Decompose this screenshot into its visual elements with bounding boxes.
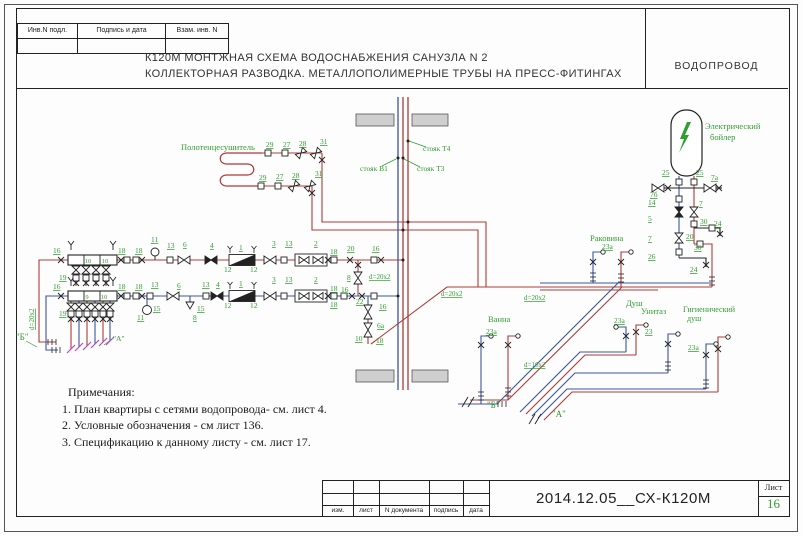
- schematic-label: 30: [700, 217, 708, 226]
- schematic-label: 23: [645, 327, 653, 336]
- schematic-label: 29: [266, 140, 274, 149]
- schematic-label: 28: [292, 171, 300, 180]
- schematic-label: 20: [686, 232, 694, 241]
- union-tick-icon: [228, 246, 233, 253]
- schematic-label: 16: [341, 285, 349, 294]
- fitting-icon: [76, 311, 82, 317]
- schematic-label: 15: [153, 304, 161, 313]
- schematic-label: 22: [356, 297, 364, 306]
- schematic-label: 18: [376, 336, 384, 345]
- schematic-label: 31: [320, 137, 328, 146]
- fitting-icon: [282, 150, 288, 156]
- valve-vertical-icon: [91, 303, 99, 311]
- schematic-label: Гигиенический: [683, 305, 736, 314]
- note-line: 1. План квартиры с сетями водопровода- с…: [62, 401, 327, 418]
- valve-vertical-icon: [72, 266, 80, 274]
- notes-heading: Примечания:: [68, 384, 327, 401]
- schematic-label: 11: [151, 235, 158, 244]
- schematic-label: 31: [315, 169, 323, 178]
- fitting-icon: [371, 257, 377, 263]
- floor-slab: [356, 114, 394, 126]
- schematic-label: 18: [330, 284, 338, 293]
- junction-dot: [397, 295, 400, 298]
- notes-block: Примечания: 1. План квартиры с сетями во…: [62, 384, 327, 450]
- schematic-label: 3: [272, 239, 276, 248]
- tap-outlet-icon: [516, 334, 520, 338]
- schematic-label: 23а: [602, 242, 614, 251]
- fitting-icon: [133, 293, 139, 299]
- schematic-label: 23а: [688, 343, 700, 352]
- schematic-label: 7: [699, 199, 703, 208]
- collector-bar: [68, 255, 117, 265]
- schematic-label: 6а: [377, 321, 385, 330]
- valve-vertical-icon: [102, 266, 110, 274]
- schematic-label: 25: [696, 168, 704, 177]
- pipe-c: [593, 252, 601, 283]
- junction-dot: [402, 259, 405, 262]
- fitting-icon: [371, 293, 377, 299]
- floor-slab: [412, 114, 448, 126]
- fitting-icon: [124, 257, 130, 263]
- valve-icon: [264, 256, 276, 264]
- schematic-label: душ: [687, 314, 702, 323]
- valve-vertical-icon: [82, 266, 90, 274]
- schematic-label: 18: [118, 282, 126, 291]
- union-tick-icon: [252, 282, 257, 289]
- schematic-label: 4: [210, 241, 214, 250]
- tap-outlet-icon: [714, 342, 718, 346]
- valve-vertical-icon: [690, 207, 698, 217]
- schematic-label: 6: [177, 281, 181, 290]
- valve-vertical-icon: [364, 323, 372, 337]
- check-valve-icon: [205, 256, 217, 264]
- schematic-label: 14: [648, 198, 656, 207]
- schematic-label: 26: [648, 252, 656, 261]
- schematic-label: 18: [330, 300, 338, 309]
- drawing-sheet: Инв.N подл. Подпись и дата Взам. инв. N …: [0, 0, 803, 536]
- floor-slab: [356, 370, 394, 382]
- schematic-label: 10: [101, 294, 108, 301]
- schematic-label: 7: [648, 234, 652, 243]
- fitting-icon: [147, 293, 153, 299]
- schematic-label: d=20x2: [28, 308, 36, 330]
- electric-boiler: [671, 110, 702, 176]
- collector-bar: [68, 291, 117, 301]
- junction-dot: [407, 221, 410, 224]
- schematic-label: "Б": [16, 332, 29, 342]
- union-tick-icon: [252, 246, 257, 253]
- schematic-label: 2: [314, 239, 318, 248]
- schematic-label: 15: [197, 304, 205, 313]
- tap-outlet-icon: [726, 335, 730, 339]
- schematic-label: 24: [690, 265, 698, 274]
- schematic-label: d=20x2: [441, 290, 463, 298]
- schematic-label: 28: [299, 139, 307, 148]
- pipe-k: [694, 228, 720, 236]
- schematic-label: 23а: [486, 327, 498, 336]
- schematic-label: 12: [250, 301, 258, 310]
- valve-icon: [167, 292, 179, 300]
- fitting-icon: [258, 183, 264, 189]
- valve-icon: [178, 256, 190, 264]
- schematic-label: 2: [314, 275, 318, 284]
- junction-dot: [407, 140, 410, 143]
- schematic-label: "А": [113, 334, 125, 343]
- schematic-label: 7а: [711, 173, 719, 182]
- schematic-label: 23а: [614, 316, 626, 325]
- schematic-label: 13: [167, 241, 175, 250]
- fitting-icon: [676, 179, 682, 185]
- schematic-label: 13: [285, 275, 293, 284]
- schematic-label: 10: [85, 258, 92, 265]
- schematic-label: Полотенцесушитель: [181, 142, 255, 152]
- drain-valve-icon: [186, 302, 194, 309]
- schematic-label: 6: [183, 240, 187, 249]
- floor-slab: [412, 370, 448, 382]
- valve-vertical-icon: [83, 303, 91, 311]
- pipe-h: [312, 186, 478, 287]
- schematic-label: 5: [648, 214, 652, 223]
- schematic-label: Электрический: [705, 121, 761, 131]
- pipe-h: [718, 337, 726, 392]
- air-vent-icon: [110, 277, 116, 286]
- towel-warmer-coil: [220, 153, 262, 186]
- union-tick-icon: [228, 282, 233, 289]
- fitting-icon: [691, 179, 697, 185]
- schematic-label: 12: [224, 301, 232, 310]
- schematic-label: 16: [53, 282, 61, 291]
- valve-vertical-icon: [67, 303, 75, 311]
- fitting-icon: [92, 311, 98, 317]
- schematic-label: 20: [347, 244, 355, 253]
- fitting-icon: [265, 150, 271, 156]
- fitting-icon: [331, 293, 337, 299]
- check-valve-icon: [211, 292, 223, 300]
- schematic-label: 30: [694, 243, 702, 252]
- valve-vertical-icon: [364, 305, 372, 319]
- tap-outlet-icon: [629, 250, 633, 254]
- schematic-label: 12: [224, 265, 232, 274]
- schematic-label: 19: [59, 309, 67, 318]
- schematic-label: 4: [216, 280, 220, 289]
- junction-dot: [397, 157, 400, 160]
- air-vent-icon: [110, 241, 116, 250]
- stamp-col-izm: изм.: [323, 505, 353, 516]
- fitting-icon: [100, 311, 106, 317]
- schematic-label: бойлер: [710, 132, 735, 142]
- junction-dot: [402, 229, 405, 232]
- valve-icon: [704, 184, 716, 192]
- tap-outlet-icon: [676, 332, 680, 336]
- fitting-icon: [281, 293, 287, 299]
- schematic-label: Унитаз: [641, 306, 667, 316]
- schematic-label: 29: [259, 173, 267, 182]
- pipe-c: [618, 327, 626, 352]
- schematic-label: 13: [202, 280, 210, 289]
- valve-vertical-icon: [106, 303, 114, 311]
- fitting-icon: [676, 249, 682, 255]
- fitting-icon: [676, 196, 682, 202]
- schematic-label: "Б": [487, 400, 500, 410]
- schematic-label: 27: [283, 140, 291, 149]
- valve-vertical-icon: [354, 272, 362, 284]
- fitting-icon: [133, 257, 139, 263]
- pipe-h: [636, 325, 644, 355]
- fitting-icon: [84, 311, 90, 317]
- check-valve-vertical-icon: [675, 207, 683, 217]
- schematic-canvas: Полотенцесушительстояк В1стояк Т3стояк Т…: [0, 0, 803, 536]
- schematic-label: 8: [347, 273, 351, 282]
- fitting-icon: [281, 257, 287, 263]
- schematic-label: 11: [137, 313, 144, 322]
- fitting-icon: [103, 275, 109, 281]
- schematic-label: 19: [59, 273, 67, 282]
- pipe-c: [706, 344, 714, 389]
- schematic-label: 13: [151, 280, 159, 289]
- fitting-icon: [93, 275, 99, 281]
- schematic-label: 13: [285, 239, 293, 248]
- schematic-label: 16: [372, 244, 380, 253]
- break-mark-icon: [462, 397, 474, 407]
- pipe-c: [668, 334, 676, 373]
- pipe-h: [322, 153, 486, 287]
- schematic-label: 24: [714, 219, 722, 228]
- stamp-col-podpis: подпись: [429, 505, 463, 516]
- pressure-gauge-icon: [151, 248, 159, 256]
- schematic-label: d=20x2: [369, 273, 391, 281]
- fitting-icon: [83, 275, 89, 281]
- schematic-label: 18: [118, 246, 126, 255]
- fitting-icon: [167, 257, 173, 263]
- valve-vertical-icon: [75, 303, 83, 311]
- schematic-label: стояк Т3: [417, 164, 445, 173]
- schematic-label: 10: [355, 334, 363, 343]
- schematic-label: 27: [276, 172, 284, 181]
- schematic-label: 18: [330, 247, 338, 256]
- break-mark-icon: [529, 414, 541, 424]
- stamp-col-data: дата: [463, 505, 489, 516]
- sheet-number: 16: [758, 496, 789, 512]
- fitting-icon: [331, 257, 337, 263]
- schematic-label: 1: [239, 279, 243, 288]
- schematic-label: 18: [135, 246, 143, 255]
- fitting-icon: [203, 293, 209, 299]
- fitting-icon: [107, 311, 113, 317]
- pipe-h: [470, 287, 622, 400]
- schematic-label: 1: [239, 243, 243, 252]
- tap-outlet-icon: [614, 325, 618, 329]
- schematic-label: Ванна: [488, 314, 511, 324]
- schematic-label: 16: [53, 246, 61, 255]
- pipe-h: [544, 392, 718, 420]
- schematic-label: 16: [379, 302, 387, 311]
- fitting-icon: [124, 293, 130, 299]
- schematic-label: d=20x2: [524, 294, 546, 302]
- schematic-label: 8: [193, 313, 197, 322]
- title-block: изм. лист N документа подпись дата 2014.…: [322, 480, 790, 517]
- stamp-col-list: лист: [353, 505, 379, 516]
- schematic-label: 18: [135, 282, 143, 291]
- schematic-label: "А": [552, 409, 566, 419]
- document-number: 2014.12.05__СХ-К120М: [489, 481, 758, 516]
- sheet-label: Лист: [758, 482, 789, 492]
- schematic-label: 3: [272, 275, 276, 284]
- fitting-icon: [691, 221, 697, 227]
- valve-icon: [264, 292, 276, 300]
- schematic-label: стояк В1: [360, 164, 388, 173]
- schematic-label: d=16x2: [524, 361, 546, 369]
- fitting-icon: [73, 275, 79, 281]
- air-vent-icon: [68, 241, 74, 250]
- stamp-col-docnum: N документа: [379, 505, 429, 516]
- schematic-label: 12: [250, 265, 258, 274]
- schematic-label: 9: [85, 294, 88, 301]
- fitting-icon: [68, 311, 74, 317]
- junction-dot: [402, 157, 405, 160]
- schematic-label: 25: [662, 168, 670, 177]
- schematic-label: 10: [102, 258, 109, 265]
- valve-vertical-icon: [99, 303, 107, 311]
- valve-vertical-icon: [92, 266, 100, 274]
- schematic-label: стояк Т4: [423, 144, 451, 153]
- note-line: 2. Условные обозначения - см лист 136.: [62, 417, 327, 434]
- note-line: 3. Спецификацию к данному листу - см. ли…: [62, 434, 327, 451]
- fitting-icon: [275, 183, 281, 189]
- valve-vertical-icon: [675, 233, 683, 243]
